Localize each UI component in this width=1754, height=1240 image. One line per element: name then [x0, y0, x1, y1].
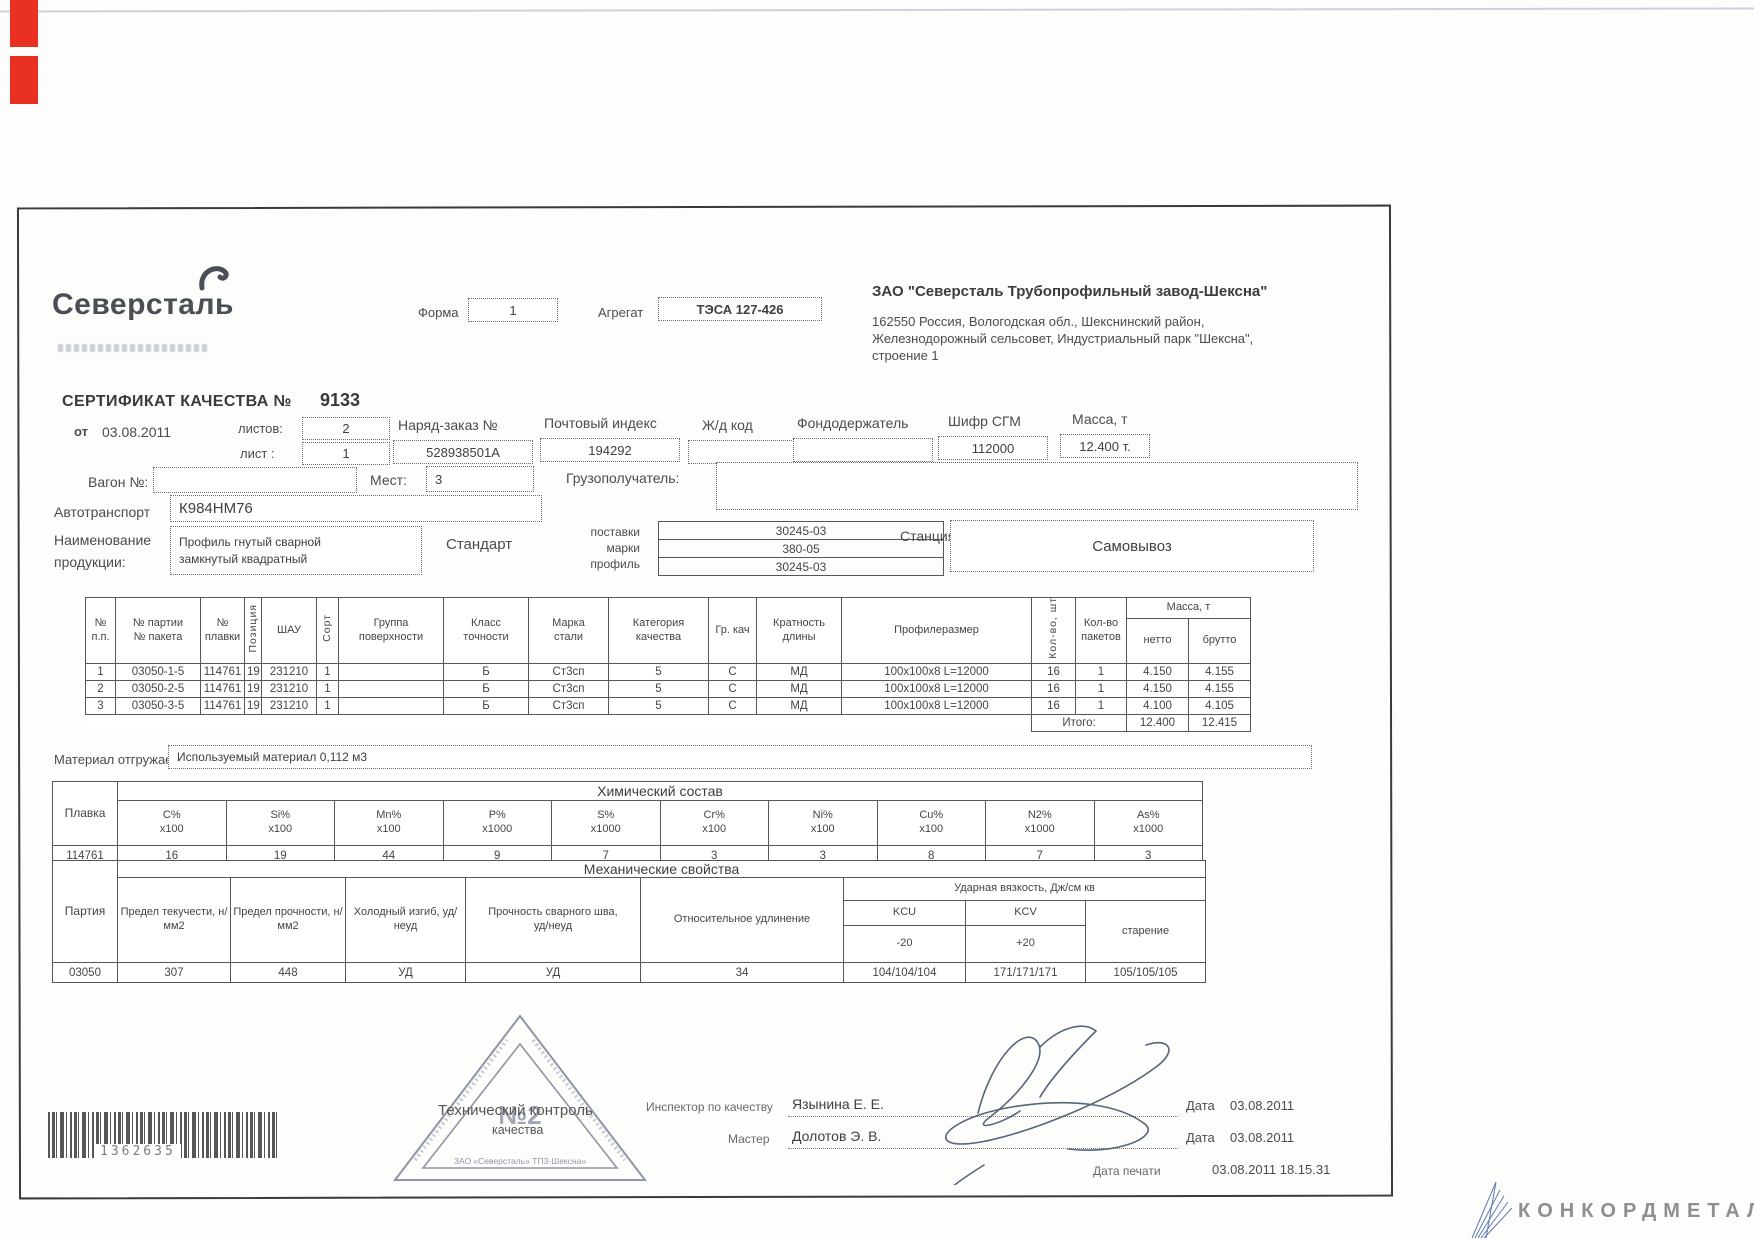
mechanics-title: Механические свойства — [118, 861, 1206, 878]
consignee-value-box — [716, 462, 1358, 510]
totals-net: 12.400 — [1127, 715, 1189, 732]
postindex-value-box: 194292 — [540, 438, 680, 462]
col-header-gross: брутто — [1189, 619, 1251, 664]
kcv-temp: +20 — [966, 926, 1086, 963]
col-header-steel-grade: Марка стали — [529, 598, 609, 664]
party-column-header: Партия — [53, 861, 118, 963]
print-date-value: 03.08.2011 18.15.31 — [1212, 1162, 1330, 1177]
totals-row: Итого: 12.400 12.415 — [86, 715, 1251, 732]
order-label: Наряд-заказ № — [398, 417, 498, 433]
scanned-quality-certificate: Северсталь Форма 1 Агрегат ТЭСА 127-426 … — [0, 0, 1754, 1240]
scan-edge-line — [0, 7, 1754, 12]
mech-col-tensile: Предел прочности, н/мм2 — [231, 878, 346, 963]
company-name: ЗАО "Северсталь Трубопрофильный завод-Ше… — [872, 283, 1392, 300]
date-prefix: от — [74, 424, 88, 439]
col-header-accuracy-class: Класс точности — [444, 598, 529, 664]
forma-label: Форма — [418, 305, 459, 320]
product-value-box: Профиль гнутый сварной замкнутый квадрат… — [170, 526, 422, 575]
scan-red-mark-top — [10, 0, 38, 47]
stamp-org-text: ЗАО «Северсталь» ТПЗ-Шексна» — [454, 1156, 587, 1166]
agregat-label: Агрегат — [598, 305, 643, 320]
master-label: Мастер — [728, 1132, 770, 1146]
sgm-value-box: 112000 — [938, 436, 1048, 460]
order-value-box: 528938501A — [393, 440, 533, 464]
melt-column-header: Плавка — [53, 782, 118, 846]
listov-value-box: 2 — [302, 417, 390, 440]
kcv-header: KCV — [966, 901, 1086, 926]
mest-value-box: 3 — [426, 466, 534, 492]
totals-gross: 12.415 — [1189, 715, 1251, 732]
standard-row-label-marki: марки — [540, 540, 640, 556]
chem-col-c: C%х100 — [118, 801, 227, 846]
product-label-line2: продукции: — [54, 554, 126, 570]
standard-row-label-postavki: поставки — [540, 524, 640, 540]
col-header-length-multiplicity: Кратность длины — [757, 598, 842, 664]
certificate-date: 03.08.2011 — [102, 424, 171, 440]
col-header-quality-group: Гр. кач — [709, 598, 757, 664]
company-address-line3: строение 1 — [872, 348, 939, 363]
list-label: лист : — [240, 446, 275, 461]
logo-tagline — [58, 344, 208, 352]
aging-header: старение — [1086, 901, 1206, 963]
company-address-line1: 162550 Россия, Вологодская обл., Шекснин… — [872, 314, 1204, 329]
forma-value-box: 1 — [468, 298, 558, 322]
table-row: 303050-3-5114761 192312101 БСт3сп 5СМД 1… — [86, 698, 1251, 715]
date-value-2: 03.08.2011 — [1230, 1130, 1294, 1145]
chemistry-table: Плавка Химический состав C%х100 Si%х100 … — [52, 781, 1203, 866]
col-header-position: Позиция — [245, 598, 262, 664]
standard-label: Стандарт — [446, 536, 512, 553]
mass-label: Масса, т — [1072, 411, 1128, 427]
col-header-quality-category: Категория качества — [609, 598, 709, 664]
col-header-melt: № плавки — [201, 598, 245, 664]
scan-red-mark-bottom — [10, 56, 38, 104]
auto-label: Автотранспорт — [54, 504, 150, 520]
sgm-label: Шифр СГМ — [948, 413, 1021, 429]
col-header-batch: № партии № пакета — [116, 598, 201, 664]
col-header-packages: Кол-во пакетов — [1076, 598, 1127, 664]
wagon-value-box — [153, 467, 357, 493]
product-line2: замкнутый квадратный — [179, 551, 307, 568]
party-value: 03050 — [53, 963, 118, 983]
certificate-number: 9133 — [320, 390, 360, 411]
quality-control-stamp-icon: №2 ЗАО «Северсталь» ТПЗ-Шексна» — [385, 1008, 655, 1193]
station-value-box: Самовывоз — [950, 520, 1314, 572]
mechanics-values-row: 03050 307 448 УД УД 34 104/104/104 171/1… — [53, 963, 1206, 983]
severstal-swoosh-icon — [196, 262, 230, 292]
agregat-value-box: ТЭСА 127-426 — [658, 297, 822, 321]
table-row: 203050-2-5114761 192312101 БСт3сп 5СМД 1… — [86, 681, 1251, 698]
concordmetal-watermark: КОНКОРДМЕТАЛЛ — [1518, 1200, 1754, 1223]
fond-label: Фондодержатель — [797, 415, 908, 431]
auto-value-box: К984НМ76 — [170, 495, 542, 522]
inspector-label: Инспектор по качеству — [646, 1100, 773, 1114]
impact-group-header: Ударная вязкость, Дж/см кв — [844, 878, 1206, 901]
inspector-name: Язынина Е. Е. — [792, 1096, 884, 1112]
col-header-num: № п.п. — [86, 598, 116, 664]
col-header-profile-size: Профилеразмер — [842, 598, 1032, 664]
col-header-net: нетто — [1127, 619, 1189, 664]
product-line1: Профиль гнутый сварной — [179, 534, 321, 551]
zhd-label: Ж/д код — [702, 417, 753, 433]
handwritten-signature-icon — [920, 1015, 1200, 1185]
kcu-header: KCU — [844, 901, 966, 926]
material-value-box: Используемый материал 0,112 м3 — [168, 745, 1312, 769]
wagon-label: Вагон №: — [88, 474, 148, 490]
col-header-sort: Сорт — [317, 598, 339, 664]
products-table: № п.п. № партии № пакета № плавки Позици… — [85, 597, 1251, 732]
chem-col-p: P%х1000 — [443, 801, 552, 846]
chem-col-ni: Ni%х100 — [769, 801, 878, 846]
mech-col-weld: Прочность сварного шва, уд/неуд — [466, 878, 641, 963]
master-name: Долотов Э. В. — [792, 1128, 881, 1144]
list-value-box: 1 — [302, 442, 390, 465]
col-header-qty: Кол-во, шт — [1032, 598, 1076, 664]
company-address-line2: Железнодорожный сельсовет, Индустриальны… — [872, 331, 1253, 346]
table-row: 103050-1-5114761 192312101 БСт3сп 5СМД 1… — [86, 664, 1251, 681]
col-header-mass-group: Масса, т — [1127, 598, 1251, 619]
col-header-surface-group: Группа поверхности — [339, 598, 444, 664]
chem-col-cr: Cr%х100 — [660, 801, 769, 846]
quality-text: качества — [492, 1123, 543, 1137]
consignee-label: Грузополучатель: — [566, 470, 679, 486]
mech-col-elong: Относительное удлинение — [641, 878, 844, 963]
col-header-shau: ШАУ — [262, 598, 317, 664]
barcode-number: 1362635 — [95, 1144, 181, 1159]
certificate-title: СЕРТИФИКАТ КАЧЕСТВА № — [62, 393, 292, 411]
postindex-label: Почтовый индекс — [544, 415, 657, 431]
mechanics-table: Партия Механические свойства Предел теку… — [52, 860, 1206, 983]
chem-col-n2: N2%х1000 — [986, 801, 1095, 846]
fond-value-box — [793, 438, 933, 462]
chem-col-as: As%х1000 — [1094, 801, 1203, 846]
chem-col-si: Si%х100 — [226, 801, 335, 846]
severstal-logo: Северсталь — [52, 288, 234, 322]
totals-label: Итого: — [1032, 715, 1127, 732]
listov-label: листов: — [238, 421, 283, 436]
mass-value-box: 12.400 т. — [1060, 434, 1150, 458]
concordmetal-logo-icon — [1462, 1178, 1516, 1240]
date-value-1: 03.08.2011 — [1230, 1098, 1294, 1113]
kcu-temp: -20 — [844, 926, 966, 963]
zhd-value-box — [688, 440, 808, 464]
mest-label: Мест: — [370, 472, 407, 488]
chem-col-cu: Cu%х100 — [877, 801, 986, 846]
product-label-line1: Наименование — [54, 532, 151, 548]
standard-value-profil: 30245-03 — [659, 558, 944, 576]
mech-col-yield: Предел текучести, н/мм2 — [118, 878, 231, 963]
chemistry-title: Химический состав — [118, 782, 1203, 801]
mech-col-bend: Холодный изгиб, уд/неуд — [346, 878, 466, 963]
chem-col-s: S%х1000 — [552, 801, 661, 846]
standard-row-label-profil: профиль — [540, 556, 640, 572]
tech-control-text: Технический контроль — [438, 1102, 593, 1119]
chem-col-mn: Mn%х100 — [335, 801, 444, 846]
standard-row-labels: поставки марки профиль — [540, 524, 640, 572]
